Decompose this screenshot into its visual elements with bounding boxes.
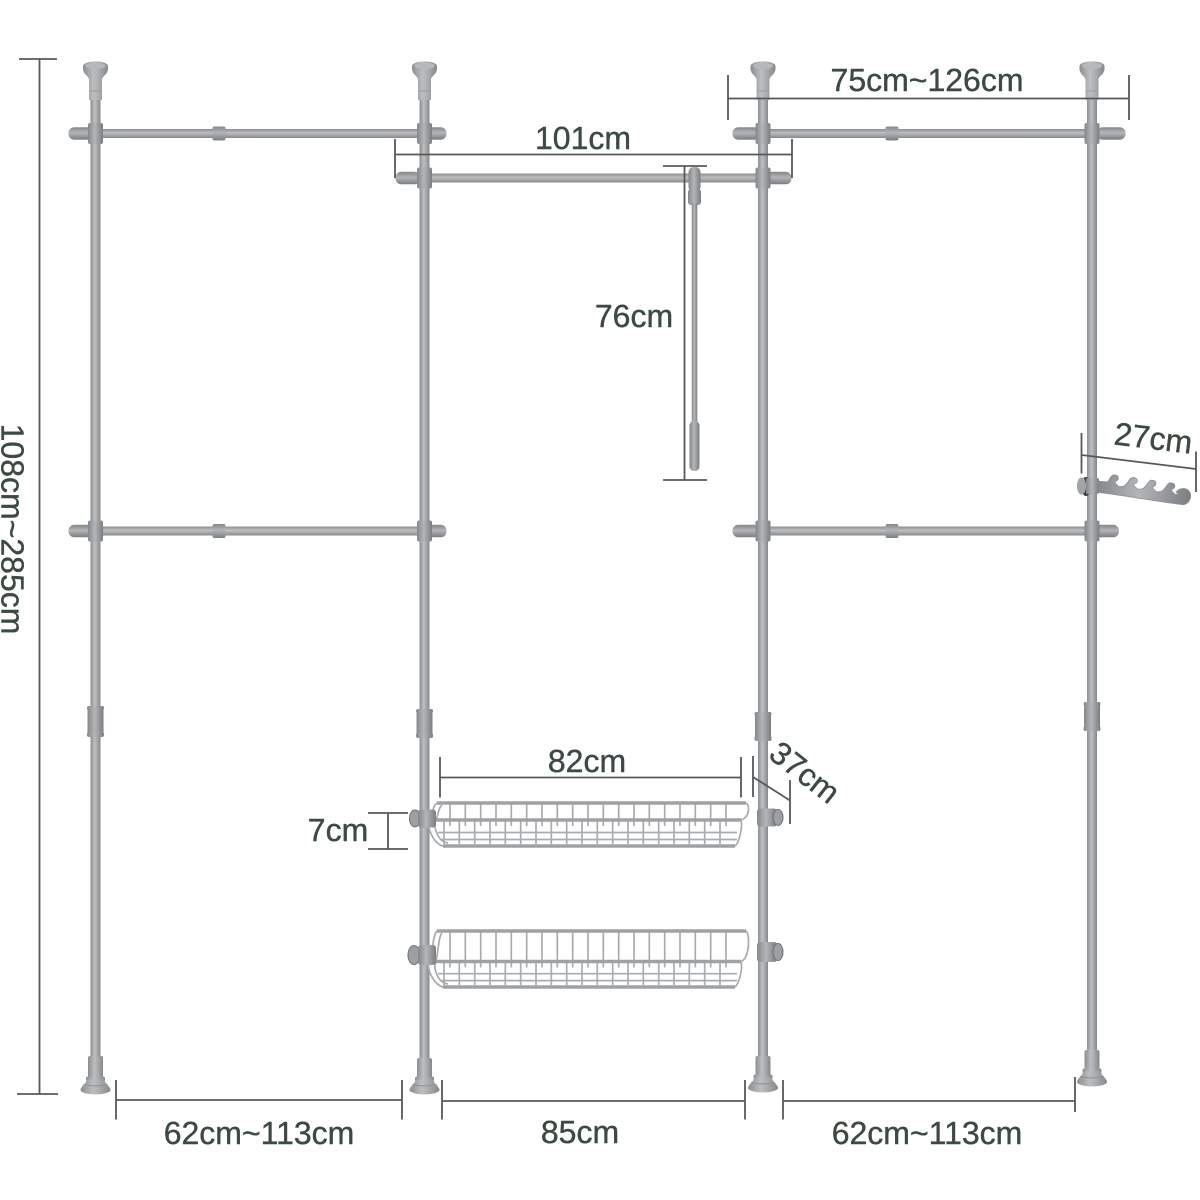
svg-text:62cm~113cm: 62cm~113cm: [832, 1115, 1023, 1151]
svg-text:62cm~113cm: 62cm~113cm: [164, 1115, 355, 1151]
svg-text:75cm~126cm: 75cm~126cm: [831, 62, 1024, 98]
svg-text:101cm: 101cm: [535, 120, 631, 156]
svg-text:76cm: 76cm: [595, 298, 673, 334]
svg-text:85cm: 85cm: [541, 1114, 619, 1150]
svg-text:27cm: 27cm: [1112, 415, 1194, 460]
svg-text:37cm: 37cm: [763, 734, 847, 811]
svg-text:108cm~285cm: 108cm~285cm: [0, 424, 31, 635]
svg-text:82cm: 82cm: [548, 743, 626, 779]
svg-text:7cm: 7cm: [308, 812, 368, 848]
